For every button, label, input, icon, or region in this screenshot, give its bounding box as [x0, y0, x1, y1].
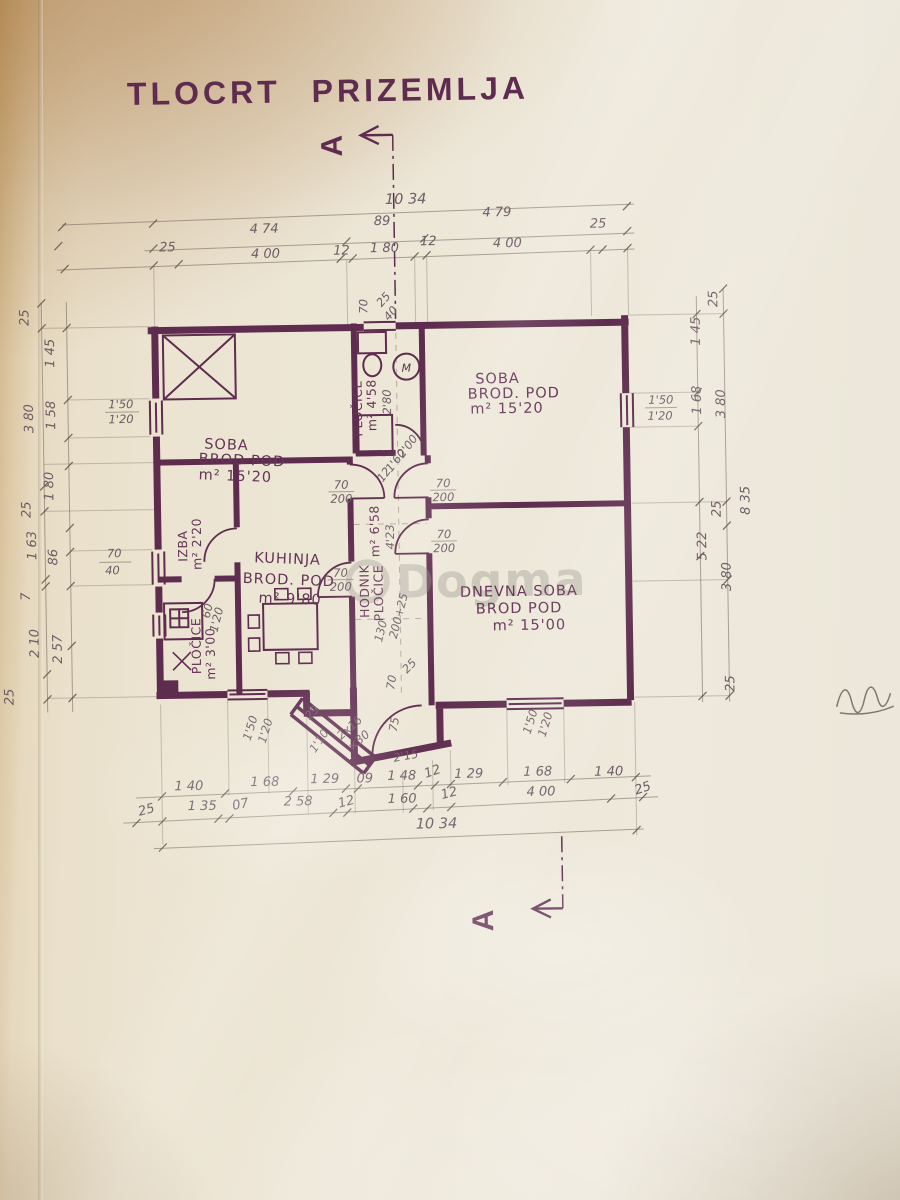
kupaonica-depth: 2'80: [380, 389, 394, 414]
dim: 3 80: [719, 562, 734, 591]
room-area-kupaonica: m² 4'58: [364, 379, 380, 431]
floor-plan-drawing: Dogma TLOCRT PRIZEMLJA A A 10 34 4 74 89…: [0, 0, 900, 1200]
dim: 2 10: [27, 629, 42, 658]
room-area-izba: m² 2'20: [189, 518, 205, 570]
dim: 4 00: [251, 247, 280, 262]
door-label: 70: [333, 566, 348, 580]
room-area: m² 15'20: [470, 401, 544, 418]
dim: 25: [706, 290, 721, 307]
door-label: 200: [330, 492, 352, 506]
dim: 89: [374, 214, 391, 229]
dim: 1 80: [42, 472, 57, 501]
room-name: DNEVNA SOBA: [460, 583, 578, 601]
room-name: KUHINJA: [254, 550, 321, 568]
section-line-top: [393, 135, 396, 319]
dim-bottom-total: 10 34: [416, 816, 458, 833]
dim: 4 00: [493, 236, 522, 251]
dim: 25: [590, 216, 607, 231]
room-label-kuhinja: KUHINJA BROD. POD m² 9'80: [242, 550, 336, 609]
dim: 12: [333, 244, 350, 259]
dim: 12: [422, 762, 443, 782]
dim: 3 80: [714, 389, 729, 418]
window-label: 1'50: [108, 397, 133, 411]
dim: 2 57: [50, 634, 65, 664]
dim: 5 22: [695, 531, 710, 560]
room-label-soba-left: SOBA BROD POD m² 15'20: [198, 436, 286, 486]
dim: 1 35: [188, 799, 217, 814]
room-label-soba-right: SOBA BROD. POD m² 15'20: [467, 370, 560, 417]
dim-top-total: 10 34: [385, 191, 427, 208]
dim: 1 40: [174, 779, 203, 794]
vent-label: 70: [356, 299, 370, 314]
window-label: 1'50: [648, 392, 673, 406]
door-label-diagonal: 2'00: [394, 432, 420, 460]
dim: 2 58: [284, 794, 313, 809]
page-title: TLOCRT PRIZEMLJA: [127, 70, 530, 112]
dim: 25: [709, 500, 724, 517]
room-floor: BROD. POD: [242, 571, 335, 590]
wc-bowl: [363, 354, 381, 376]
dim: 86: [46, 549, 61, 566]
room-floor: BROD POD: [476, 600, 563, 617]
door-label: 200: [432, 490, 454, 504]
chimney-block: [161, 681, 177, 697]
dim: 7: [19, 592, 34, 601]
wardrobe: [163, 334, 236, 399]
dim: 25: [159, 240, 176, 255]
dim: 1 48: [387, 769, 416, 784]
dim: 1 63: [25, 531, 40, 560]
room-area-spajz: m² 3'00: [202, 628, 218, 680]
scanned-floor-plan-paper: Dogma TLOCRT PRIZEMLJA A A 10 34 4 74 89…: [0, 0, 900, 1200]
dim: 1 80: [370, 241, 399, 256]
dim: 4 00: [526, 784, 555, 799]
dim: 12: [439, 784, 459, 803]
dim: 1 45: [689, 317, 704, 346]
hodnik-length: 4'23: [383, 524, 397, 549]
dim: 1 29: [310, 772, 339, 787]
dim: 1 45: [43, 339, 58, 368]
dim: 12: [336, 793, 356, 812]
door-label: 70: [436, 476, 451, 490]
dim: 4 79: [482, 205, 511, 220]
room-area: m² 9'80: [258, 590, 322, 608]
dim: 1 68: [523, 764, 552, 779]
door-label: 200: [433, 541, 455, 555]
room-area: m² 15'00: [493, 617, 567, 634]
door-label: 70: [437, 527, 452, 541]
dim: 25: [2, 689, 17, 706]
dim: 8 35: [738, 486, 753, 515]
section-letter-bottom: A: [467, 909, 500, 931]
dim: 1 60: [388, 792, 417, 807]
window-label: 1'20: [108, 412, 133, 426]
dim: 1 58: [44, 401, 59, 430]
kitchen-table: [263, 603, 318, 650]
interior-walls: [155, 319, 631, 709]
section-letter-top: A: [316, 135, 349, 157]
section-arrow-top: [361, 126, 393, 145]
room-label-dnevna-soba: DNEVNA SOBA BROD POD m² 15'00: [460, 583, 579, 635]
dim: 25: [723, 675, 738, 692]
signature-squiggle: [836, 687, 893, 714]
dim: 12: [420, 234, 437, 249]
steps-label: 70: [383, 674, 399, 691]
room-area: m² 15'20: [198, 467, 272, 486]
dim: 3 80: [22, 404, 37, 433]
washer-letter: M: [402, 362, 412, 375]
dim: 25: [136, 801, 156, 820]
dim: 07: [231, 796, 251, 814]
entry-door-label: 200+25: [386, 592, 411, 640]
dim: 1 68: [690, 385, 705, 414]
room-area-hodnik: m² 6'58: [367, 505, 383, 557]
section-line-bottom: [562, 836, 563, 908]
steps-label: 75: [386, 716, 402, 733]
window-label: 70: [107, 546, 122, 560]
room-floor-hodnik: PLOČICE: [370, 565, 386, 622]
window-symbols: [149, 318, 638, 715]
dim: 1 29: [454, 767, 483, 782]
door-label: 70: [334, 478, 349, 492]
section-arrow-bottom: [533, 899, 563, 917]
dim: 1 68: [250, 775, 279, 790]
dim: 1 40: [594, 764, 623, 779]
window-label: 1'20: [647, 408, 672, 422]
dim: 25: [19, 501, 34, 518]
steps-label: 2'15: [392, 747, 419, 765]
wc-cistern: [358, 332, 386, 353]
dim: 25: [17, 309, 32, 326]
dim: 4 74: [250, 222, 279, 237]
steps-label: 25: [399, 656, 419, 676]
dim: 09: [356, 771, 373, 786]
window-label: 40: [105, 563, 120, 577]
pencil-layer: [36, 198, 896, 853]
